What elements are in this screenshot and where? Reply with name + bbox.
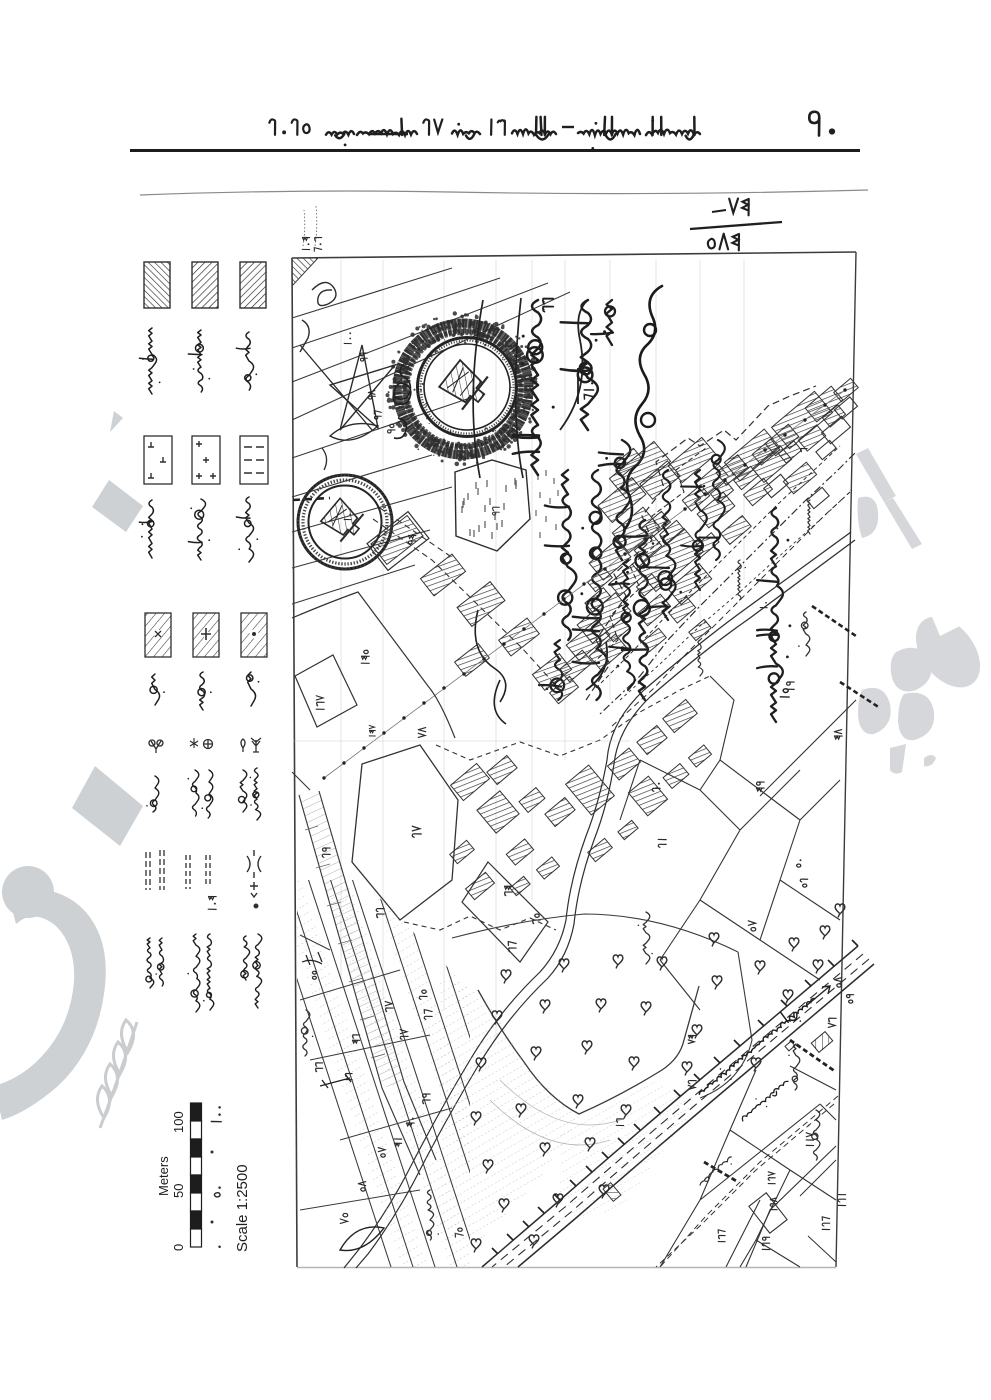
svg-text:Scale 1:2500: Scale 1:2500 — [234, 1164, 251, 1252]
svg-text:100: 100 — [171, 1111, 186, 1133]
svg-text:0: 0 — [171, 1244, 186, 1251]
svg-text:50: 50 — [171, 1184, 186, 1198]
svg-text:Meters: Meters — [156, 1156, 171, 1196]
